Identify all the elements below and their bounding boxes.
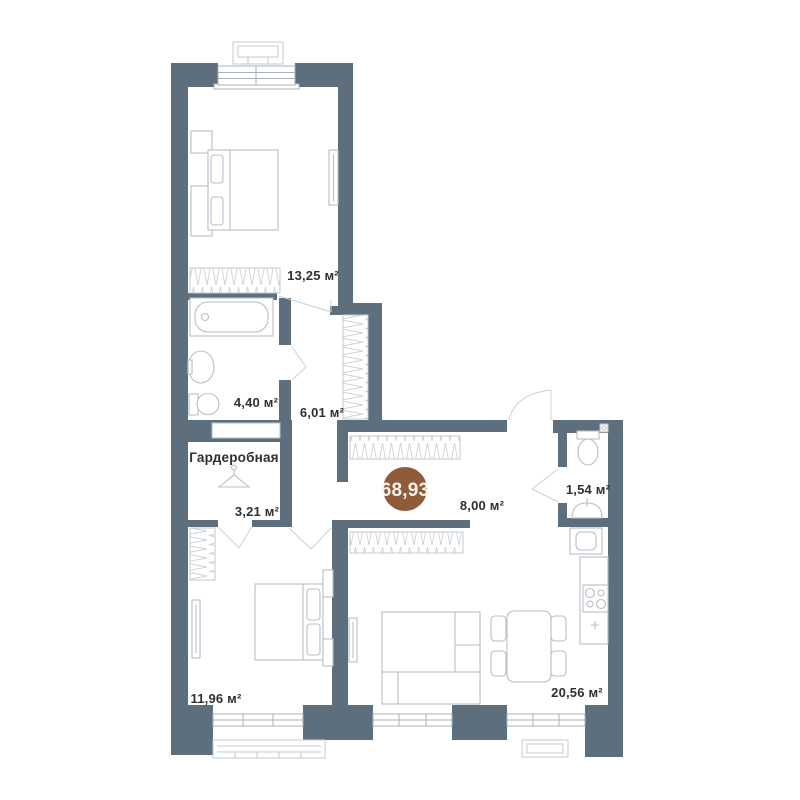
stove-icon — [583, 585, 608, 612]
wall-pillar-bottom-mid2 — [452, 705, 507, 740]
wall-pillar-bottom-right — [585, 705, 623, 757]
room-label-entry-hall: 8,00 м² — [460, 498, 505, 513]
total-area-badge-value: 68,93 — [381, 480, 430, 501]
balcony-bedroom-icon — [213, 740, 325, 758]
wall-wardrobe-right — [280, 420, 292, 527]
wall-wc-bottom — [558, 518, 608, 527]
wall-step — [338, 303, 382, 315]
door-wardrobe — [219, 528, 251, 548]
wall-hallway-right — [368, 315, 382, 422]
wall-bathroom-right-a — [279, 298, 291, 345]
room-label-wc: 1,54 м² — [566, 482, 611, 497]
wc-toilet-icon — [578, 439, 598, 465]
chair-icon — [551, 616, 566, 641]
wall-pillar-bottom-mid — [303, 705, 373, 740]
door-bathroom — [292, 347, 306, 380]
wall-pillar-bottom-left — [171, 705, 213, 755]
wall-hall-bottom — [332, 520, 470, 528]
wall-living-left — [332, 520, 348, 712]
sofa-icon — [382, 612, 480, 704]
wall-wc-left-a — [558, 422, 567, 467]
wall-bathroom-right-b — [279, 380, 291, 422]
door-wc — [532, 469, 558, 502]
floor-plan: 13,25 м² 4,40 м² 6,01 м² Гардеробная 3,2… — [0, 0, 800, 800]
furniture — [188, 131, 608, 704]
chair-icon — [491, 616, 506, 641]
wall-left-exterior — [171, 63, 188, 740]
door-entry — [509, 390, 551, 420]
wall-top-left — [171, 63, 218, 87]
chair-icon — [551, 651, 566, 676]
nightstand-icon — [323, 639, 333, 666]
room-label-bathroom: 4,40 м² — [234, 395, 279, 410]
door-bedroom-bottom — [289, 528, 331, 549]
wall-hall-left — [337, 420, 348, 482]
wall-wardrobe-bottom-a — [188, 520, 218, 527]
toilet-icon — [197, 394, 219, 415]
room-label-hallway: 6,01 м² — [300, 405, 345, 420]
room-label-wardrobe: 3,21 м² — [235, 504, 280, 519]
dining-table-icon — [507, 611, 551, 682]
room-label-bedroom-top: 13,25 м² — [287, 268, 339, 283]
wall-niche — [212, 423, 280, 438]
hanger-icon — [219, 465, 249, 487]
nightstand-icon — [323, 570, 333, 597]
room-label-bedroom-bottom: 11,96 м² — [191, 691, 242, 706]
room-name-wardrobe: Гардеробная — [189, 450, 279, 465]
total-area-badge: 68,93 — [381, 467, 430, 511]
floor-plan-canvas: 13,25 м² 4,40 м² 6,01 м² Гардеробная 3,2… — [0, 0, 800, 800]
wall-bedroom-top-right — [338, 63, 353, 306]
room-label-living-kitchen: 20,56 м² — [551, 685, 603, 700]
chair-icon — [491, 651, 506, 676]
wc-toilet-tank-icon — [577, 431, 599, 439]
wall-wardrobe-bottom-b — [252, 520, 288, 527]
wall-entry-top — [348, 420, 507, 432]
